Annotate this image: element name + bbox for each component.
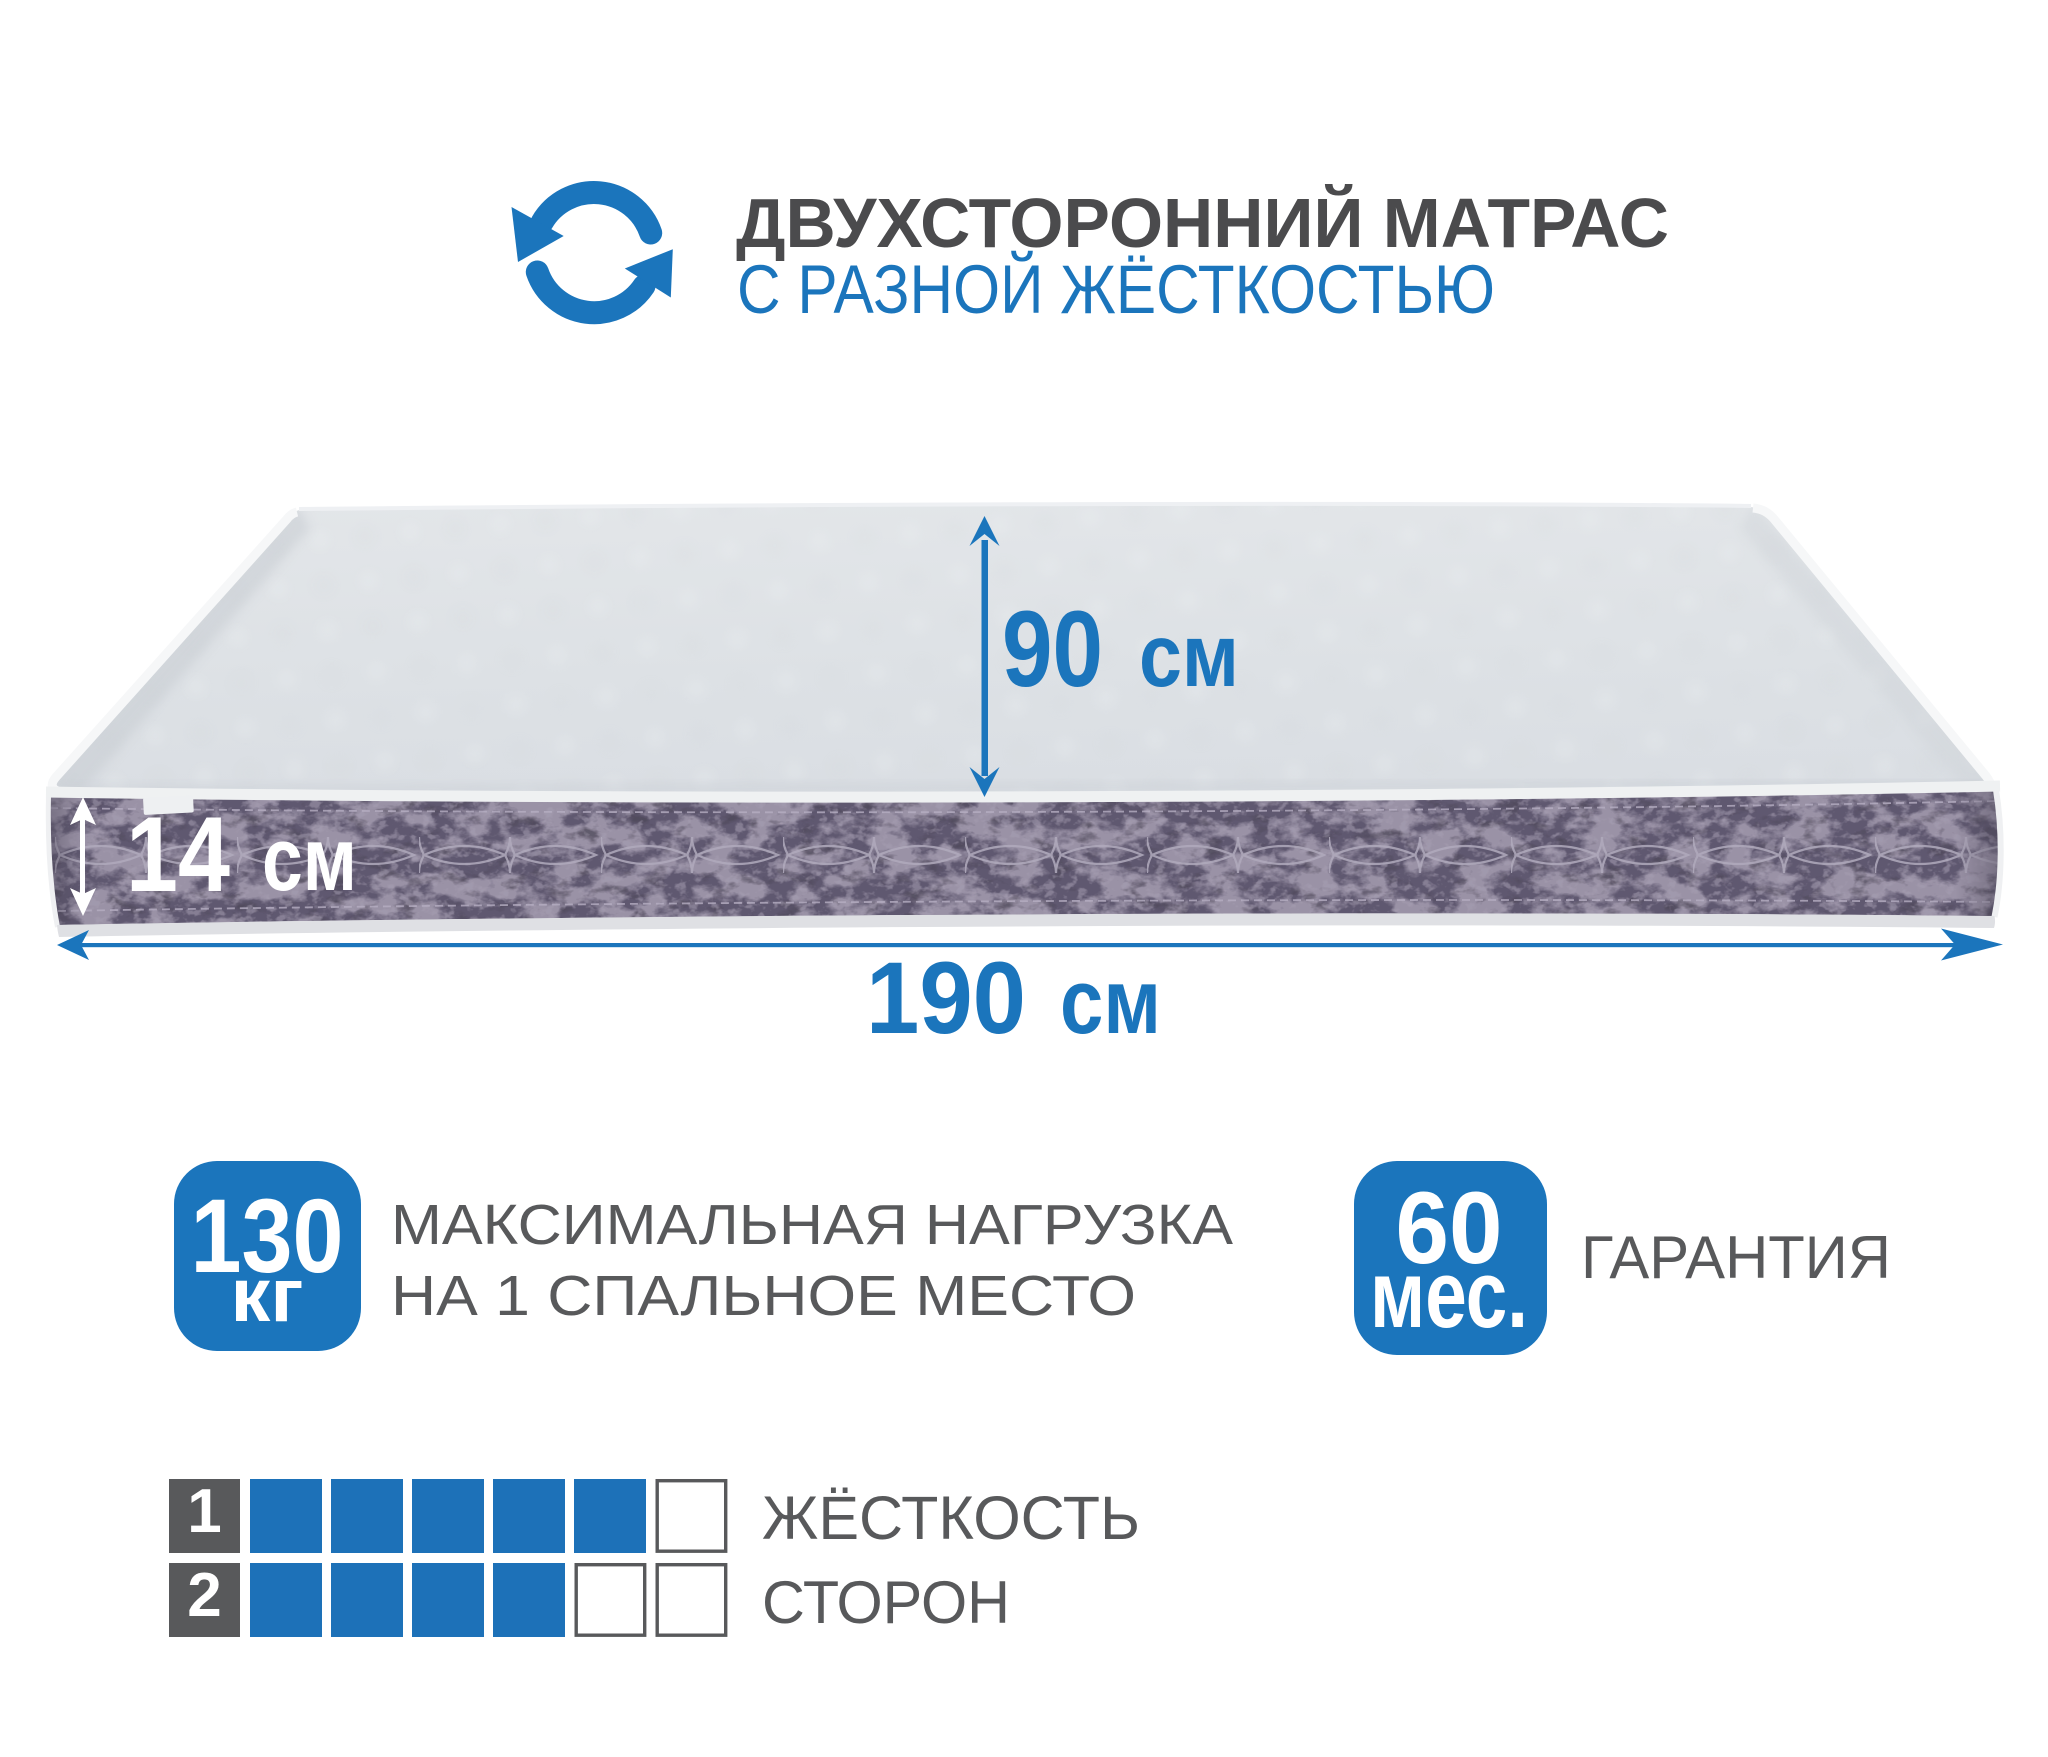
- svg-text:ГАРАНТИЯ: ГАРАНТИЯ: [1581, 1224, 1891, 1291]
- svg-text:14: 14: [126, 794, 230, 914]
- svg-text:мес.: мес.: [1370, 1241, 1528, 1348]
- svg-text:МАКСИМАЛЬНАЯ НАГРУЗКА: МАКСИМАЛЬНАЯ НАГРУЗКА: [391, 1193, 1233, 1257]
- svg-text:ЖЁСТКОСТЬ: ЖЁСТКОСТЬ: [762, 1484, 1140, 1552]
- svg-text:2: 2: [187, 1561, 221, 1630]
- svg-text:90: 90: [1002, 588, 1103, 709]
- svg-text:1: 1: [187, 1477, 221, 1546]
- svg-text:190: 190: [866, 941, 1026, 1055]
- svg-text:НА 1 СПАЛЬНОЕ МЕСТО: НА 1 СПАЛЬНОЕ МЕСТО: [391, 1264, 1136, 1328]
- svg-text:см: см: [262, 810, 357, 910]
- svg-text:кг: кг: [231, 1253, 304, 1338]
- svg-text:С РАЗНОЙ ЖЁСТКОСТЬЮ: С РАЗНОЙ ЖЁСТКОСТЬЮ: [737, 251, 1495, 328]
- svg-text:см: см: [1139, 605, 1239, 705]
- svg-text:см: см: [1060, 951, 1161, 1053]
- svg-text:СТОРОН: СТОРОН: [762, 1569, 1010, 1636]
